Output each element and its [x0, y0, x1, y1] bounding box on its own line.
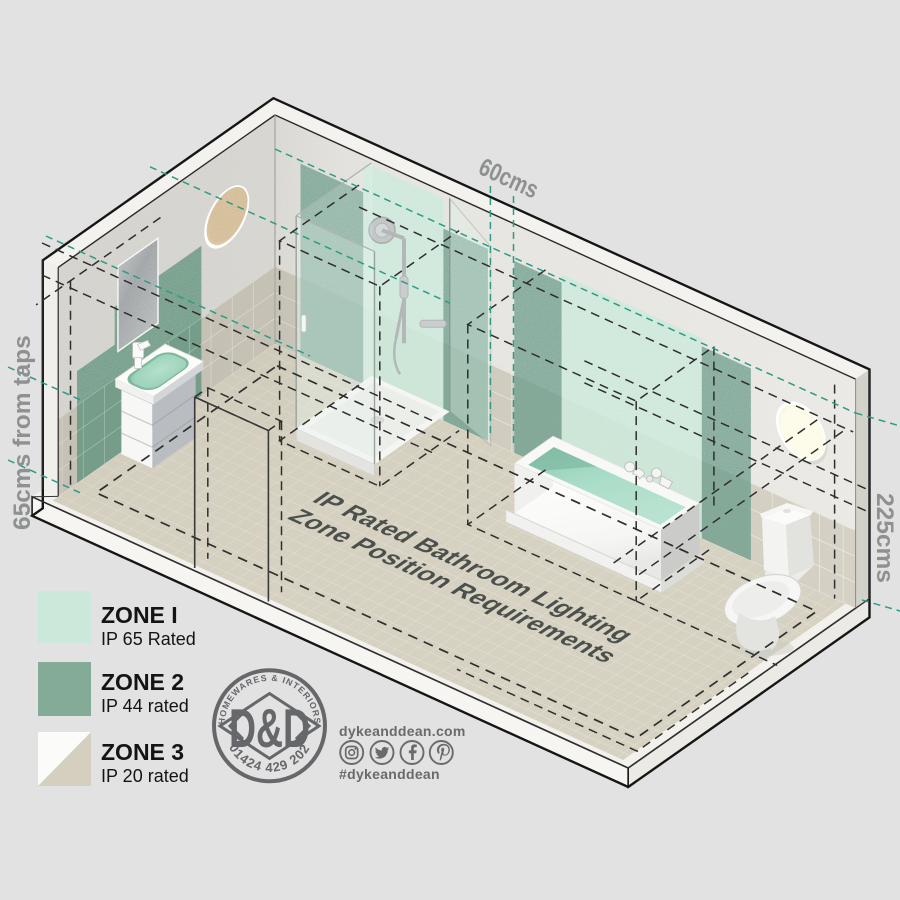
svg-text:ZONE I: ZONE I	[101, 602, 178, 628]
svg-text:ZONE 2: ZONE 2	[101, 669, 184, 695]
svg-text:225cms: 225cms	[871, 493, 898, 583]
svg-text:D&D: D&D	[229, 697, 310, 759]
svg-text:65cms from taps: 65cms from taps	[9, 335, 36, 530]
svg-text:IP 65 Rated: IP 65 Rated	[101, 629, 196, 649]
svg-text:IP 20 rated: IP 20 rated	[101, 766, 189, 786]
svg-text:#dykeanddean: #dykeanddean	[339, 766, 440, 782]
svg-text:ZONE 3: ZONE 3	[101, 739, 184, 765]
svg-text:dykeanddean.com: dykeanddean.com	[339, 723, 466, 739]
svg-text:IP 44 rated: IP 44 rated	[101, 696, 189, 716]
